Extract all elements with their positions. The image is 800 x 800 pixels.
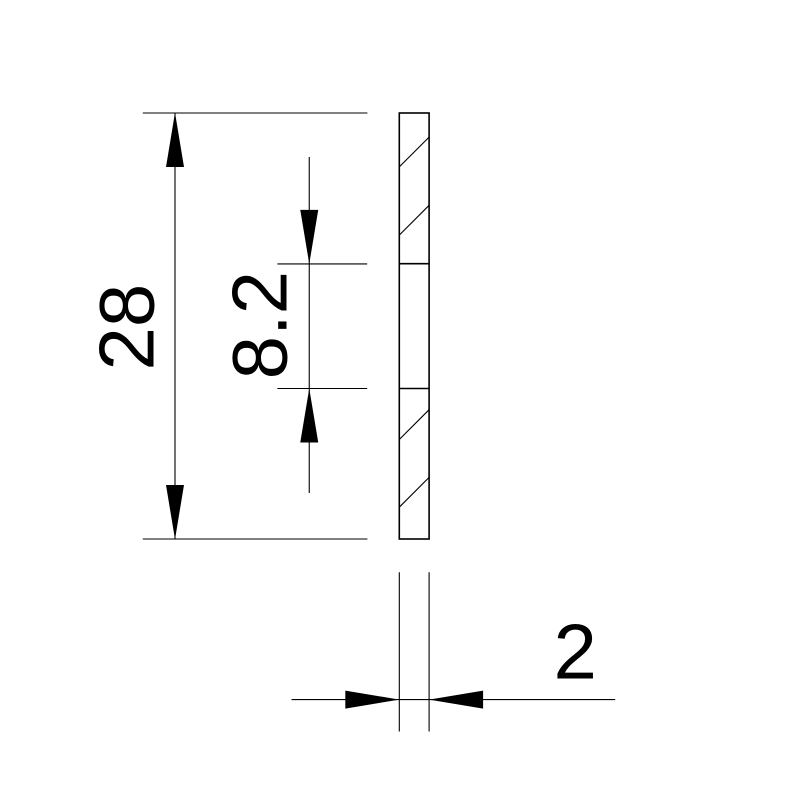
svg-text:2: 2 (554, 608, 597, 696)
svg-text:28: 28 (82, 284, 170, 371)
svg-text:8.2: 8.2 (215, 271, 303, 379)
